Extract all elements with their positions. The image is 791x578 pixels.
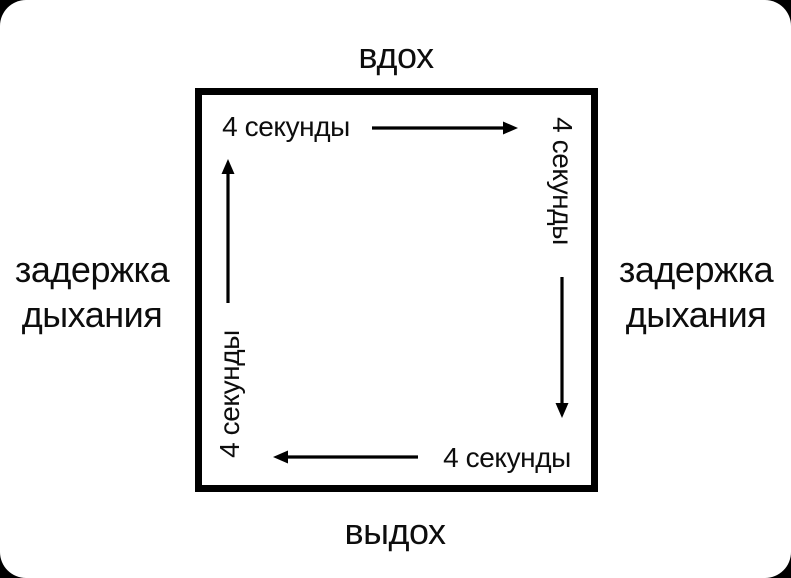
- label-hold-right-line2: дыхания: [619, 292, 773, 337]
- arrow-right-icon: [372, 120, 518, 136]
- duration-bottom: 4 секунды: [443, 444, 571, 472]
- label-hold-right-line1: задержка: [619, 247, 773, 292]
- duration-left: 4 секунды: [216, 330, 244, 458]
- label-hold-left-line1: задержка: [15, 247, 169, 292]
- label-hold-left-line2: дыхания: [15, 292, 169, 337]
- label-inhale: вдох: [358, 36, 433, 76]
- label-hold-left: задержка дыхания: [15, 247, 169, 337]
- arrow-up-icon: [220, 159, 236, 303]
- duration-top: 4 секунды: [222, 113, 350, 141]
- arrow-left-icon: [273, 449, 418, 465]
- breathing-square: [195, 88, 598, 492]
- label-exhale: выдох: [344, 512, 445, 552]
- arrow-down-icon: [554, 277, 570, 418]
- breathing-diagram-card: вдох выдох задержка дыхания задержка дых…: [0, 0, 791, 578]
- label-hold-right: задержка дыхания: [619, 247, 773, 337]
- duration-right: 4 секунды: [548, 117, 576, 245]
